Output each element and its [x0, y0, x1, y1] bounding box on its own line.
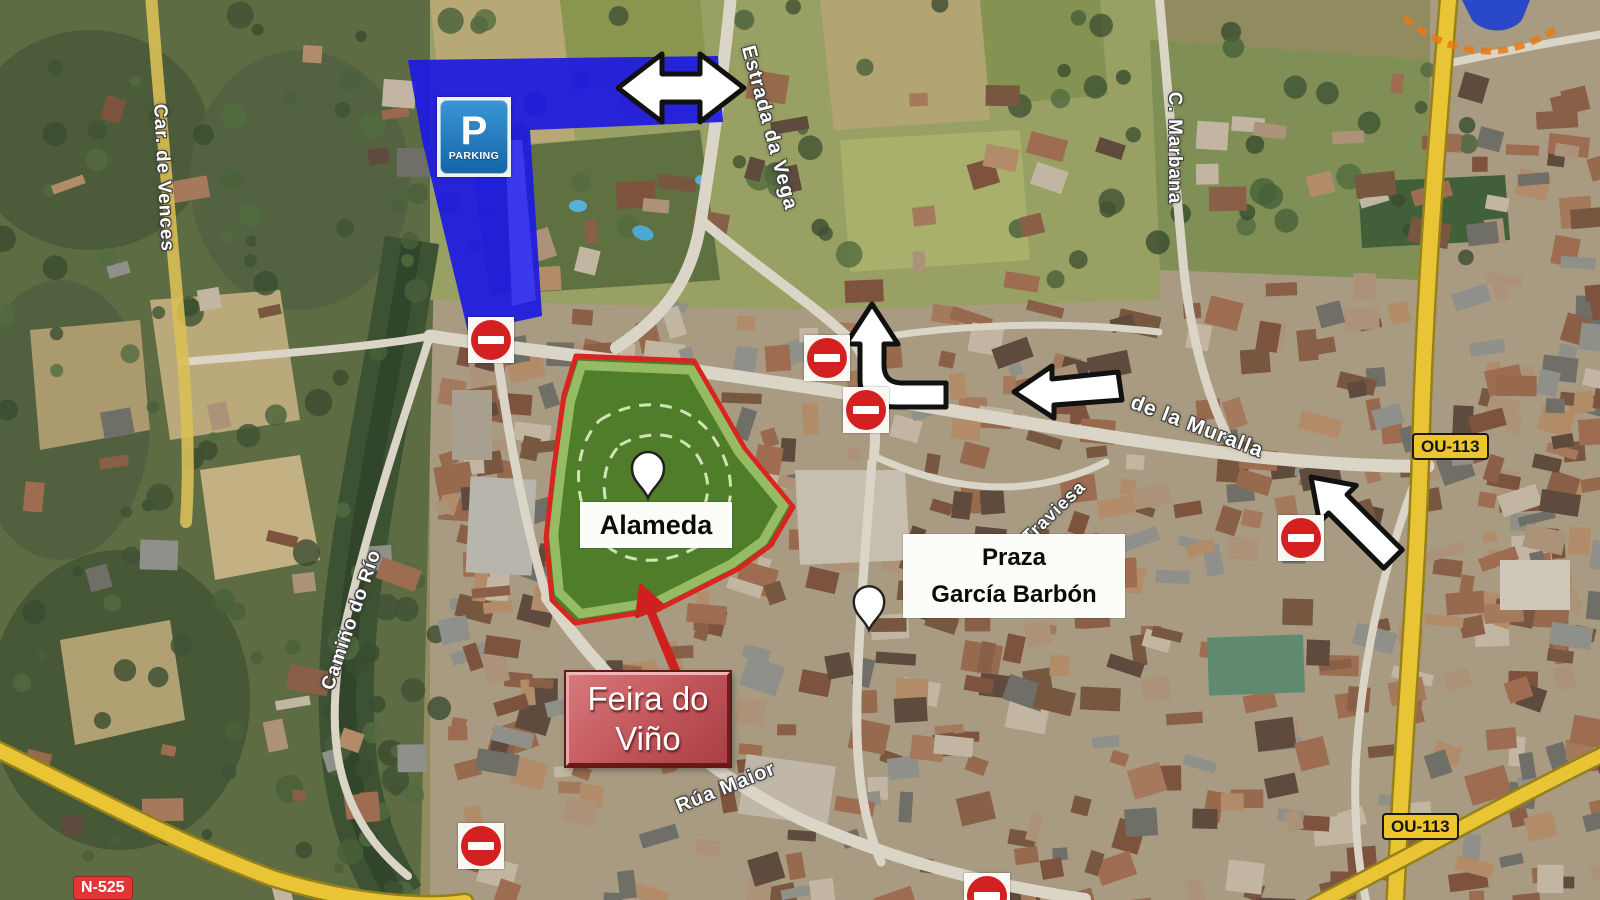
feira-line2: Viño: [615, 719, 680, 759]
praza-label-line2: García Barbón: [931, 576, 1096, 613]
no-entry-circle: [461, 826, 501, 866]
no-entry-sign: [458, 823, 504, 869]
no-entry-sign: [843, 387, 889, 433]
alameda-label: Alameda: [580, 502, 732, 548]
no-entry-bar: [814, 354, 840, 362]
feira-line1: Feira do: [587, 679, 708, 719]
no-entry-sign: [1278, 515, 1324, 561]
road-badge-n525: N-525: [73, 876, 133, 900]
alameda-label-text: Alameda: [600, 510, 713, 541]
map-canvas: Estrada da Vega C. Marbana Car. de Vence…: [0, 0, 1600, 900]
parking-sign-panel: P PARKING: [440, 100, 508, 174]
no-entry-bar: [468, 842, 494, 850]
no-entry-circle: [807, 338, 847, 378]
no-entry-bar: [974, 892, 1000, 900]
no-entry-bar: [853, 406, 879, 414]
no-entry-sign: [804, 335, 850, 381]
parking-p-symbol: P: [461, 112, 488, 150]
praza-label-line1: Praza: [982, 539, 1046, 576]
no-entry-sign: [468, 317, 514, 363]
no-entry-sign: [964, 873, 1010, 900]
road-badge-ou113-lower: OU-113: [1382, 813, 1459, 840]
no-entry-bar: [1288, 534, 1314, 542]
no-entry-bar: [478, 336, 504, 344]
parking-label: PARKING: [449, 150, 499, 162]
parking-sign: P PARKING: [437, 97, 511, 177]
no-entry-circle: [846, 390, 886, 430]
feira-do-vino-box: Feira do Viño: [566, 672, 730, 766]
praza-garcia-barbon-label: Praza García Barbón: [903, 534, 1125, 618]
street-label-c-marbana: C. Marbana: [1163, 92, 1185, 204]
no-entry-circle: [967, 876, 1007, 900]
no-entry-circle: [1281, 518, 1321, 558]
satellite-layer: [0, 0, 1600, 900]
no-entry-circle: [471, 320, 511, 360]
road-badge-ou113-upper: OU-113: [1412, 433, 1489, 460]
